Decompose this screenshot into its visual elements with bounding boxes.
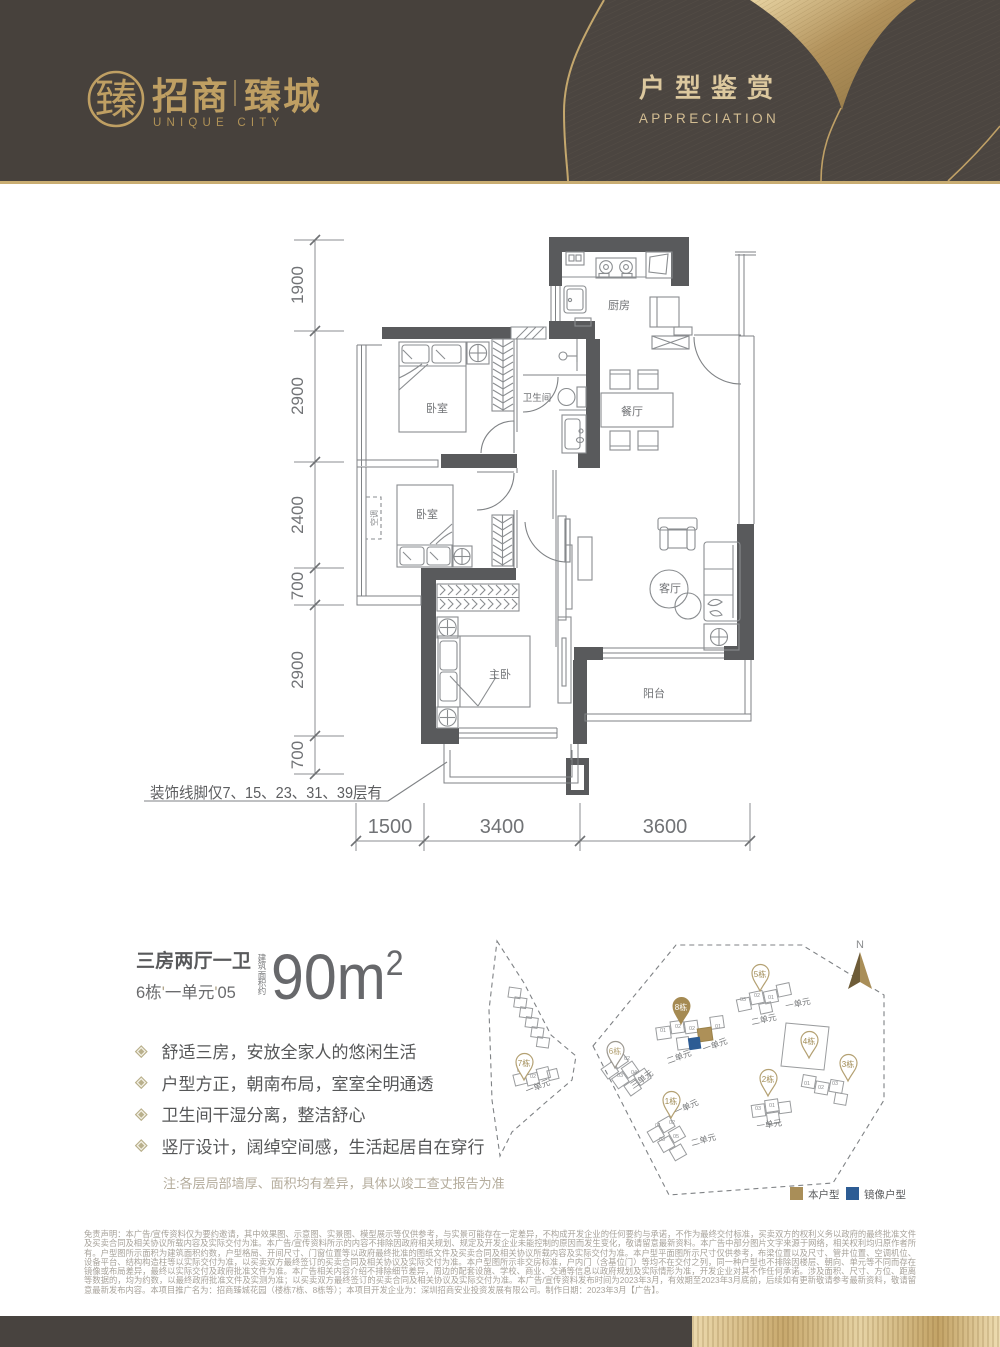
- svg-text:阳台: 阳台: [643, 686, 665, 700]
- svg-text:一单元: 一单元: [524, 1077, 552, 1096]
- svg-text:04: 04: [631, 1070, 637, 1076]
- svg-text:02: 02: [530, 1074, 536, 1080]
- svg-text:03: 03: [832, 1081, 838, 1087]
- svg-text:户型鉴赏: 户型鉴赏: [639, 73, 783, 103]
- svg-text:本户型: 本户型: [808, 1188, 840, 1201]
- svg-text:卧室: 卧室: [416, 507, 438, 521]
- svg-text:02: 02: [689, 1026, 695, 1032]
- svg-text:二单元: 二单元: [750, 1012, 778, 1027]
- svg-text:厨房: 厨房: [608, 299, 630, 312]
- svg-text:05: 05: [673, 1134, 679, 1140]
- svg-text:空调: 空调: [369, 510, 379, 526]
- svg-text:2900: 2900: [288, 377, 307, 415]
- svg-text:二单元: 二单元: [690, 1132, 718, 1148]
- svg-text:APPRECIATION: APPRECIATION: [639, 111, 779, 126]
- svg-text:3600: 3600: [643, 816, 688, 838]
- svg-text:01: 01: [660, 1028, 666, 1034]
- svg-text:主卧: 主卧: [489, 668, 511, 681]
- svg-text:01: 01: [715, 1024, 721, 1030]
- svg-text:招商: 招商: [152, 76, 230, 117]
- svg-text:02: 02: [754, 993, 760, 999]
- svg-text:2900: 2900: [288, 651, 307, 689]
- svg-text:02: 02: [624, 1056, 630, 1062]
- svg-text:卧室: 卧室: [426, 401, 448, 415]
- svg-text:1栋: 1栋: [665, 1096, 677, 1106]
- svg-text:700: 700: [288, 572, 307, 600]
- svg-text:5栋: 5栋: [754, 969, 766, 979]
- svg-text:镜像户型: 镜像户型: [864, 1188, 906, 1201]
- svg-text:02: 02: [675, 1024, 681, 1030]
- svg-text:05: 05: [679, 1042, 685, 1048]
- svg-text:03: 03: [755, 1106, 761, 1112]
- svg-text:餐厅: 餐厅: [621, 404, 643, 418]
- svg-text:N: N: [856, 939, 864, 951]
- svg-text:3400: 3400: [480, 816, 525, 838]
- svg-text:700: 700: [288, 741, 307, 769]
- svg-text:2400: 2400: [288, 496, 307, 534]
- svg-text:03: 03: [740, 997, 746, 1003]
- svg-text:一单元: 一单元: [756, 1117, 783, 1131]
- svg-text:02: 02: [669, 1120, 675, 1126]
- svg-text:4栋: 4栋: [803, 1036, 815, 1046]
- svg-text:01: 01: [804, 1081, 810, 1087]
- svg-text:1900: 1900: [288, 266, 307, 304]
- svg-text:01: 01: [655, 1123, 661, 1129]
- svg-text:6栋: 6栋: [609, 1046, 621, 1056]
- svg-text:臻城: 臻城: [244, 76, 322, 117]
- svg-text:03: 03: [617, 1073, 623, 1079]
- svg-text:8栋: 8栋: [675, 1002, 687, 1012]
- svg-text:3栋: 3栋: [842, 1059, 854, 1069]
- svg-text:03: 03: [659, 1137, 665, 1143]
- svg-text:01: 01: [768, 995, 774, 1001]
- svg-text:2栋: 2栋: [762, 1074, 774, 1084]
- svg-text:02: 02: [818, 1085, 824, 1091]
- svg-text:装饰线脚仅7、15、23、31、39层有: 装饰线脚仅7、15、23、31、39层有: [150, 784, 382, 802]
- svg-text:01: 01: [769, 1103, 775, 1109]
- svg-text:7栋: 7栋: [518, 1058, 530, 1068]
- svg-text:1500: 1500: [368, 816, 413, 838]
- svg-text:卫生间: 卫生间: [523, 392, 552, 404]
- svg-text:一单元: 一单元: [784, 996, 812, 1011]
- svg-text:客厅: 客厅: [659, 581, 681, 595]
- svg-text:UNIQUE CITY: UNIQUE CITY: [153, 117, 284, 129]
- svg-text:臻: 臻: [95, 76, 137, 123]
